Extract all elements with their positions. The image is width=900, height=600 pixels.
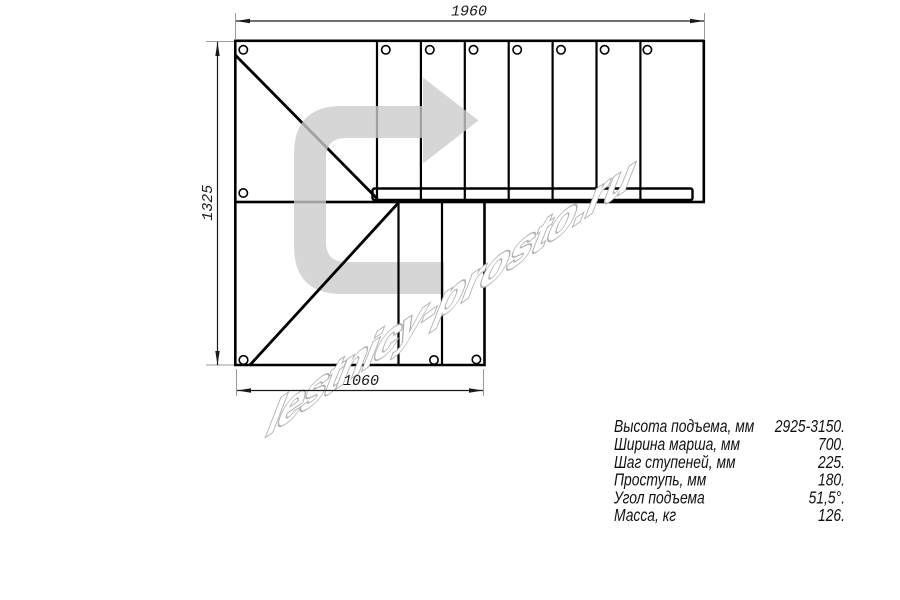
svg-text:1060: 1060 xyxy=(343,373,379,390)
svg-text:1960: 1960 xyxy=(451,3,487,20)
svg-text:Шаг ступеней, мм: Шаг ступеней, мм xyxy=(614,453,736,472)
svg-text:225.: 225. xyxy=(817,453,845,472)
svg-text:2925-3150.: 2925-3150. xyxy=(774,418,845,437)
svg-text:Проступь, мм: Проступь, мм xyxy=(614,471,706,490)
svg-text:700.: 700. xyxy=(818,436,845,455)
svg-text:51,5°.: 51,5°. xyxy=(809,489,845,508)
svg-text:180.: 180. xyxy=(818,471,845,490)
svg-text:126.: 126. xyxy=(818,507,845,526)
svg-text:Масса, кг: Масса, кг xyxy=(614,507,676,526)
svg-text:Угол подъема: Угол подъема xyxy=(613,489,705,508)
svg-text:Ширина марша, мм: Ширина марша, мм xyxy=(614,436,740,455)
svg-text:1325: 1325 xyxy=(200,185,217,221)
svg-text:Высота подъема, мм: Высота подъема, мм xyxy=(614,418,754,437)
